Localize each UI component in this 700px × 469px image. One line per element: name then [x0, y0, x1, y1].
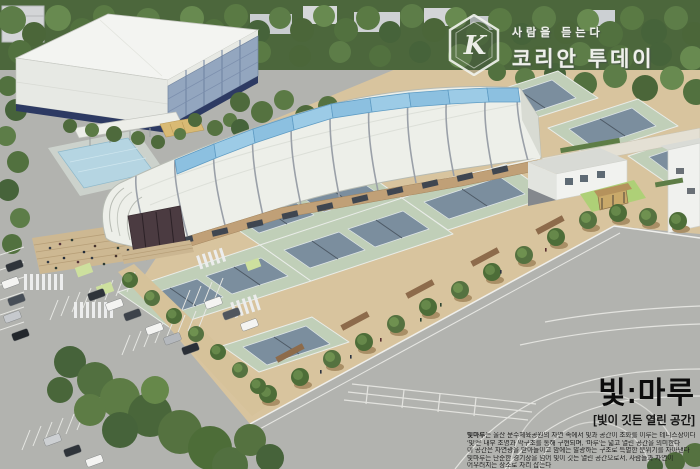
project-description: 빛마루는 울산 문수체육공원의 자연 속에서 빛과 공간이 조화를 이루는 테니… [467, 432, 695, 469]
project-caption: 빛:마루 [빛이 깃든 열린 공간] 빛마루는 울산 문수체육공원의 자연 속에… [433, 379, 695, 469]
tree [122, 272, 138, 288]
project-title: 빛:마루 [433, 379, 695, 409]
tree [188, 326, 204, 342]
description-line: 어우러지는 장소로 자리 잡는다 [467, 462, 695, 469]
tree [166, 308, 182, 324]
description-text: 는 울산 문수체육공원의 자연 속에서 빛과 공간이 조화를 이루는 테니스장이… [485, 432, 695, 439]
description-line: '빛'은 내부 조명과 막구조를 통해 구현되며, '마루'는 넓고 열린 공간… [467, 440, 695, 448]
description-line: 빛마루는 단순한 경기장을 넘어 빛이 깃든 열린 공간으로서, 사람들과 자연… [467, 455, 695, 463]
description-line: 빛마루는 울산 문수체육공원의 자연 속에서 빛과 공간이 조화를 이루는 테니… [467, 432, 695, 440]
description-line: 이 공간은 자연광을 받아들이고 밤에는 발광하는 구조로 특별한 분위기를 자… [467, 447, 695, 455]
tree [210, 344, 226, 360]
description-lead: 빛마루 [467, 432, 485, 439]
project-subtitle: [빛이 깃든 열린 공간] [433, 412, 695, 428]
tree [250, 378, 266, 394]
tree [144, 290, 160, 306]
aerial-rendering: K 사람을 듣는다 코리안 투데이 빛:마루 [빛이 깃든 열린 공간] 빛마루… [0, 0, 700, 469]
tree [232, 362, 248, 378]
